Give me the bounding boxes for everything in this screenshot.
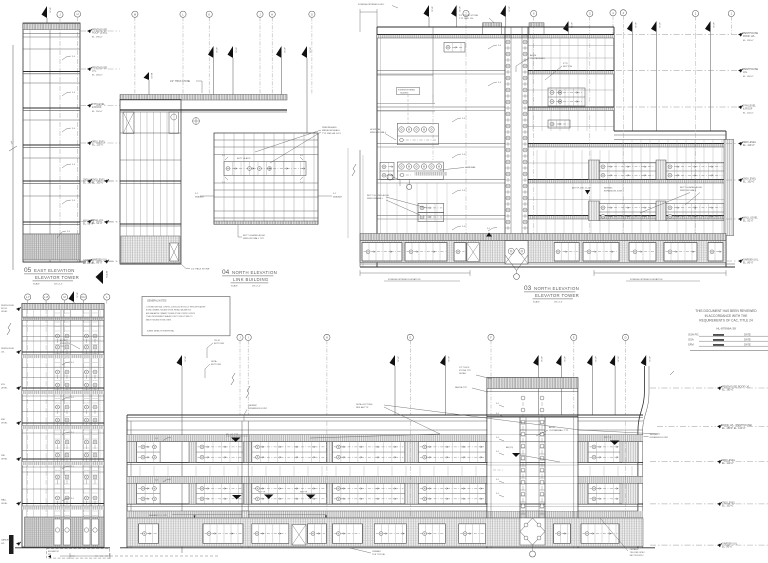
svg-text:ALUM.: ALUM. <box>530 54 537 57</box>
svg-text:LEVEL: LEVEL <box>1 311 8 313</box>
svg-text:BUTT GLAZED ALUM.: BUTT GLAZED ALUM. <box>243 234 266 237</box>
svg-text:L.7: L.7 <box>26 295 30 299</box>
svg-text:TB. M.: TB. M. <box>214 340 221 342</box>
svg-text:M.2: M.2 <box>81 295 86 299</box>
svg-text:EL. 110'-0": EL. 110'-0" <box>722 462 734 465</box>
svg-text:1/2" THICK STONE: 1/2" THICK STONE <box>170 81 190 83</box>
svg-text:EL. 180'0" EL. 120'-0": EL. 180'0" EL. 120'-0" <box>722 427 746 430</box>
svg-text:CURTAINWALL TYP.: CURTAINWALL TYP. <box>549 429 569 432</box>
svg-text:A7.2/1: A7.2/1 <box>634 23 637 30</box>
svg-text:EL. 110'-0": EL. 110'-0" <box>92 144 104 147</box>
svg-text:BUTT GLAZED ALUM.: BUTT GLAZED ALUM. <box>367 194 390 197</box>
svg-text:A7.2/1: A7.2/1 <box>397 357 400 364</box>
svg-text:NORTH ELEVATION: NORTH ELEVATION <box>534 286 579 291</box>
svg-text:LEVEL: LEVEL <box>1 388 8 390</box>
svg-text:05: 05 <box>24 267 32 274</box>
svg-text:RE TYP.: RE TYP. <box>300 492 308 494</box>
svg-text:IN ACCORDANCE WITH THE: IN ACCORDANCE WITH THE <box>705 314 748 318</box>
svg-text:RE TYP.: RE TYP. <box>604 437 612 439</box>
svg-text:A7.2/1: A7.2/1 <box>658 23 661 30</box>
svg-text:FORESHORTENED ELEVATION: FORESHORTENED ELEVATION <box>388 278 421 281</box>
svg-text:AB (15): AB (15) <box>506 446 513 449</box>
svg-text:AB TYP. DIM. 21-1/2": AB TYP. DIM. 21-1/2" <box>572 187 591 190</box>
svg-text:A7.2/1: A7.2/1 <box>594 357 597 364</box>
svg-text:STONE TYP.: STONE TYP. <box>459 370 471 372</box>
svg-text:EL. 150'-0": EL. 150'-0" <box>92 111 103 113</box>
svg-text:A7.2/1: A7.2/1 <box>431 7 434 14</box>
svg-text:CERAMIC: CERAMIC <box>372 550 382 553</box>
svg-text:LINK BUILDING: LINK BUILDING <box>233 277 269 282</box>
svg-text:K: K <box>208 12 210 16</box>
svg-text:1/2" THICK: 1/2" THICK <box>459 367 470 369</box>
svg-text:EL. 80'-0": EL. 80'-0" <box>92 262 103 265</box>
svg-text:EL. 80'-0": EL. 80'-0" <box>722 546 733 549</box>
svg-text:DATE: DATE <box>744 338 751 342</box>
svg-text:H: H <box>77 12 79 16</box>
svg-text:TYP. SHE. US.: TYP. SHE. US. <box>459 18 474 20</box>
svg-text:A8.1/3: A8.1/3 <box>150 73 153 78</box>
svg-text:WINDOW WALL: WINDOW WALL <box>370 131 387 134</box>
svg-text:PREFINISHED: PREFINISHED <box>322 127 337 129</box>
svg-text:THIS DOCUMENT HAS BEEN REVIEWE: THIS DOCUMENT HAS BEEN REVIEWED <box>695 309 757 313</box>
svg-text:A7.2/1: A7.2/1 <box>283 48 286 55</box>
svg-text:ROOF LEVEL: ROOF LEVEL <box>92 32 108 35</box>
svg-text:A7.2/1: A7.2/1 <box>570 23 573 30</box>
svg-text:SECTION 9312: SECTION 9312 <box>630 555 645 557</box>
svg-text:A7.2/1: A7.2/1 <box>648 357 651 364</box>
svg-text:E: E <box>573 336 575 340</box>
svg-text:FASCIA TYP.: FASCIA TYP. <box>455 386 468 389</box>
svg-text:3RD: 3RD <box>1 419 6 421</box>
svg-text:A7.2/1: A7.2/1 <box>235 48 238 55</box>
svg-text:SEISMIC: SEISMIC <box>249 405 258 407</box>
svg-text:EL. 190'-0": EL. 190'-0" <box>722 389 734 392</box>
svg-text:LVL.: LVL. <box>92 70 97 73</box>
svg-text:M: M <box>134 12 136 16</box>
svg-text:NORTH ELEVATION: NORTH ELEVATION <box>232 270 277 275</box>
svg-text:PENTHOUSE: PENTHOUSE <box>1 305 15 307</box>
svg-text:A7.2/1: A7.2/1 <box>712 23 715 30</box>
svg-text:BUTT GLAZED ALUM.: BUTT GLAZED ALUM. <box>680 186 703 189</box>
svg-text:& ROOF: & ROOF <box>92 106 102 109</box>
svg-text:BUTTONS: BUTTONS <box>214 343 225 345</box>
svg-text:EAST ELEVATION: EAST ELEVATION <box>34 268 75 273</box>
svg-text:M: M <box>64 295 66 299</box>
svg-text:A7.2/1: A7.2/1 <box>184 357 187 364</box>
svg-text:PENTHOUSE: PENTHOUSE <box>1 348 15 350</box>
svg-text:A7.2/1: A7.2/1 <box>540 357 543 364</box>
svg-text:WINDOW WALL: WINDOW WALL <box>680 189 697 192</box>
svg-text:& ROOF: & ROOF <box>743 108 753 111</box>
svg-text:CERAMIC: CERAMIC <box>630 548 640 551</box>
svg-text:BUTTONS: BUTTONS <box>211 364 222 366</box>
svg-text:4TH: 4TH <box>1 384 5 386</box>
svg-text:ELEVATOR: ELEVATOR <box>48 550 59 553</box>
svg-text:A7.2/1: A7.2/1 <box>617 357 620 364</box>
svg-text:LVL.: LVL. <box>743 71 748 74</box>
svg-text:A7.2/1: A7.2/1 <box>215 48 218 55</box>
svg-text:EL. 100'-0": EL. 100'-0" <box>83 182 95 185</box>
svg-text:NORTH: NORTH <box>105 271 107 278</box>
svg-text:EL. 80'-0": EL. 80'-0" <box>83 262 94 265</box>
svg-text:ELEVATOR TOWER: ELEVATOR TOWER <box>535 293 579 298</box>
svg-text:SEALANT: SEALANT <box>333 196 343 199</box>
svg-text:METAL REVEALS: METAL REVEALS <box>322 129 340 132</box>
svg-text:REF. AB TYP.: REF. AB TYP. <box>356 406 369 409</box>
svg-text:SEISMIC: SEISMIC <box>650 434 659 436</box>
svg-text:GENERAL NOTES: GENERAL NOTES <box>147 300 167 303</box>
svg-text:TILE REF. SPEC.: TILE REF. SPEC. <box>630 552 646 554</box>
svg-text:DETA.: DETA. <box>211 360 217 363</box>
svg-text:SCALE: SCALE <box>33 283 40 286</box>
svg-text:A7.2/1: A7.2/1 <box>563 357 566 364</box>
svg-text:H: H <box>271 12 273 16</box>
svg-text:REQUIREMENTS OF CAC, TITLE 24: REQUIREMENTS OF CAC, TITLE 24 <box>699 319 753 323</box>
svg-text:EXPANSION JOINT: EXPANSION JOINT <box>249 407 268 410</box>
svg-text:LEVEL: LEVEL <box>1 423 8 425</box>
svg-text:EL. 180'-0": EL. 180'-0" <box>92 75 103 77</box>
svg-text:A7.2/1: A7.2/1 <box>458 7 461 14</box>
svg-text:BUTTON: BUTTON <box>563 66 572 68</box>
svg-text:HL-87996A-38: HL-87996A-38 <box>716 327 736 331</box>
svg-text:ELEVATOR TOWER: ELEVATOR TOWER <box>35 275 79 280</box>
svg-text:1/2" PACK STONE: 1/2" PACK STONE <box>191 268 210 271</box>
svg-text:DATE: DATE <box>744 343 751 347</box>
svg-text:EXPANSION JOINT: EXPANSION JOINT <box>604 190 623 193</box>
svg-text:TYP.: TYP. <box>60 346 65 348</box>
svg-text:03: 03 <box>524 285 532 292</box>
svg-text:SEALANT C.J. TYP.: SEALANT C.J. TYP. <box>149 514 168 517</box>
svg-text:RE: LVL TYP.: RE: LVL TYP. <box>226 434 239 436</box>
svg-text:GARDEN: GARDEN <box>1 539 10 542</box>
svg-text:D: D <box>625 336 627 340</box>
svg-text:1/8"=1'-0": 1/8"=1'-0" <box>54 284 63 286</box>
svg-text:EL. 92'-0": EL. 92'-0" <box>743 220 754 223</box>
svg-text:WINDOW WALL: WINDOW WALL <box>367 197 384 200</box>
svg-text:A7.2/1: A7.2/1 <box>447 357 450 364</box>
svg-text:EL. 190'-0": EL. 190'-0" <box>743 40 754 42</box>
svg-text:04: 04 <box>222 269 230 276</box>
svg-text:G: G <box>311 12 313 16</box>
svg-text:1/8"=1'-0": 1/8"=1'-0" <box>252 286 261 288</box>
svg-text:FORESHORTENED ELEV.: FORESHORTENED ELEV. <box>358 4 385 6</box>
svg-text:A7.2/1: A7.2/1 <box>76 293 79 300</box>
svg-text:SCALE: SCALE <box>231 285 238 288</box>
svg-text:2ND: 2ND <box>1 455 6 457</box>
svg-text:WINDOW WALL TYP.: WINDOW WALL TYP. <box>243 237 265 240</box>
svg-text:A7.2/1: A7.2/1 <box>309 48 312 55</box>
svg-text:TILE TYPICAL: TILE TYPICAL <box>372 553 386 556</box>
svg-text:OSH PG.: OSH PG. <box>688 333 699 337</box>
svg-text:TYP. REF. A8.1/4.3: TYP. REF. A8.1/4.3 <box>322 132 341 135</box>
svg-text:EL. 110'-0": EL. 110'-0" <box>743 144 755 147</box>
svg-text:EL. 92'-0": EL. 92'-0" <box>83 223 94 226</box>
svg-text:EL. 140'-0": EL. 140'-0" <box>743 113 754 115</box>
svg-text:FORESHORTENED ELEVATION: FORESHORTENED ELEVATION <box>630 278 663 281</box>
svg-text:EL. 100'-0": EL. 100'-0" <box>743 181 755 184</box>
svg-text:G: G <box>409 336 411 340</box>
svg-text:FT'D: FT'D <box>563 63 568 65</box>
svg-text:SEISMIC: SEISMIC <box>604 188 613 190</box>
svg-text:DATE: DATE <box>744 333 751 337</box>
svg-text:SEALANT: SEALANT <box>195 196 205 199</box>
svg-text:LVL.: LVL. <box>1 543 6 545</box>
svg-text:1/2" THICK STONE: 1/2" THICK STONE <box>459 15 479 17</box>
svg-text:SFM: SFM <box>688 343 694 347</box>
svg-text:LOUVERS: LOUVERS <box>60 343 71 345</box>
svg-text:A7.2/1: A7.2/1 <box>507 7 510 14</box>
svg-text:GLAZING: GLAZING <box>400 92 409 95</box>
svg-text:SCALE: SCALE <box>533 301 540 304</box>
svg-text:EL. 180'-0": EL. 180'-0" <box>743 76 754 78</box>
svg-text:ROOF: ROOF <box>1 308 8 310</box>
svg-text:DETAIL: DETAIL <box>459 372 467 375</box>
svg-text:1/8"=1'-0": 1/8"=1'-0" <box>554 302 563 304</box>
svg-text:EXPANSION JOINT: EXPANSION JOINT <box>650 436 669 439</box>
svg-text:DETA. BUTTONS: DETA. BUTTONS <box>356 403 373 406</box>
svg-text:EL. 190'-0": EL. 190'-0" <box>92 37 103 39</box>
svg-text:RE TYP.: RE TYP. <box>258 492 266 494</box>
svg-text:ALUM.: ALUM. <box>60 339 67 342</box>
svg-text:H: H <box>326 336 328 340</box>
svg-text:CURTAINWALL: CURTAINWALL <box>530 57 546 60</box>
svg-text:LVL.: LVL. <box>1 352 6 354</box>
svg-text:LEVEL: LEVEL <box>1 459 8 461</box>
svg-text:A7.2/1: A7.2/1 <box>49 8 52 15</box>
svg-text:EL. 80'-0": EL. 80'-0" <box>743 262 754 265</box>
svg-text:EL. 100'-0": EL. 100'-0" <box>722 505 734 508</box>
svg-text:BUTT GLAS'D: BUTT GLAS'D <box>237 157 251 160</box>
svg-text:FORESHORTENED: FORESHORTENED <box>398 90 416 92</box>
svg-text:LEVEL: LEVEL <box>1 503 8 505</box>
svg-text:SUBMIT DETAILS FOR APPROVAL.: SUBMIT DETAILS FOR APPROVAL. <box>147 330 175 333</box>
svg-text:L.8: L.8 <box>44 295 48 299</box>
svg-text:ROOF LVL.: ROOF LVL. <box>743 35 756 38</box>
svg-text:HANDRAIL: HANDRAIL <box>465 166 477 169</box>
svg-text:OSA: OSA <box>688 338 694 342</box>
svg-text:WALL: WALL <box>1 499 7 502</box>
svg-text:HOSPITAL: HOSPITAL <box>370 128 381 131</box>
